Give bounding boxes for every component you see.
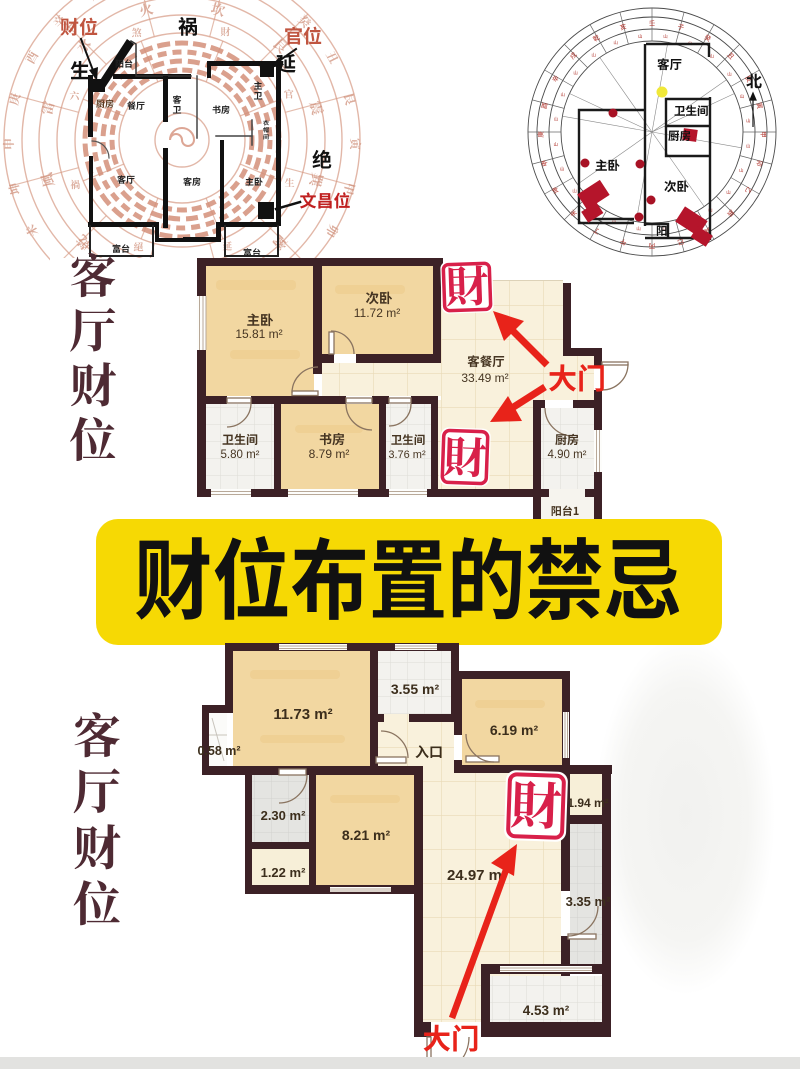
- svg-text:11.73 m²: 11.73 m²: [273, 706, 332, 723]
- svg-text:3.35 m²: 3.35 m²: [566, 894, 611, 909]
- svg-text:8.79 m²: 8.79 m²: [309, 447, 350, 461]
- svg-text:6.19 m²: 6.19 m²: [490, 722, 539, 738]
- svg-text:4.90 m²: 4.90 m²: [548, 449, 587, 461]
- svg-text:2.30 m²: 2.30 m²: [261, 808, 306, 823]
- svg-text:8.21 m²: 8.21 m²: [342, 827, 391, 843]
- svg-text:0.58 m²: 0.58 m²: [197, 744, 240, 758]
- svg-text:3.55 m²: 3.55 m²: [391, 681, 440, 697]
- svg-text:11.72 m²: 11.72 m²: [354, 306, 400, 320]
- svg-text:24.97 m²: 24.97 m²: [447, 867, 507, 884]
- svg-text:33.49 m²: 33.49 m²: [461, 371, 508, 385]
- svg-text:1.94 m²: 1.94 m²: [567, 796, 608, 810]
- svg-text:15.81 m²: 15.81 m²: [235, 327, 282, 341]
- svg-text:4.53 m²: 4.53 m²: [523, 1003, 570, 1018]
- svg-text:3.76 m²: 3.76 m²: [388, 449, 426, 461]
- svg-text:5.80 m²: 5.80 m²: [221, 449, 260, 461]
- svg-text:1.22 m²: 1.22 m²: [261, 865, 306, 880]
